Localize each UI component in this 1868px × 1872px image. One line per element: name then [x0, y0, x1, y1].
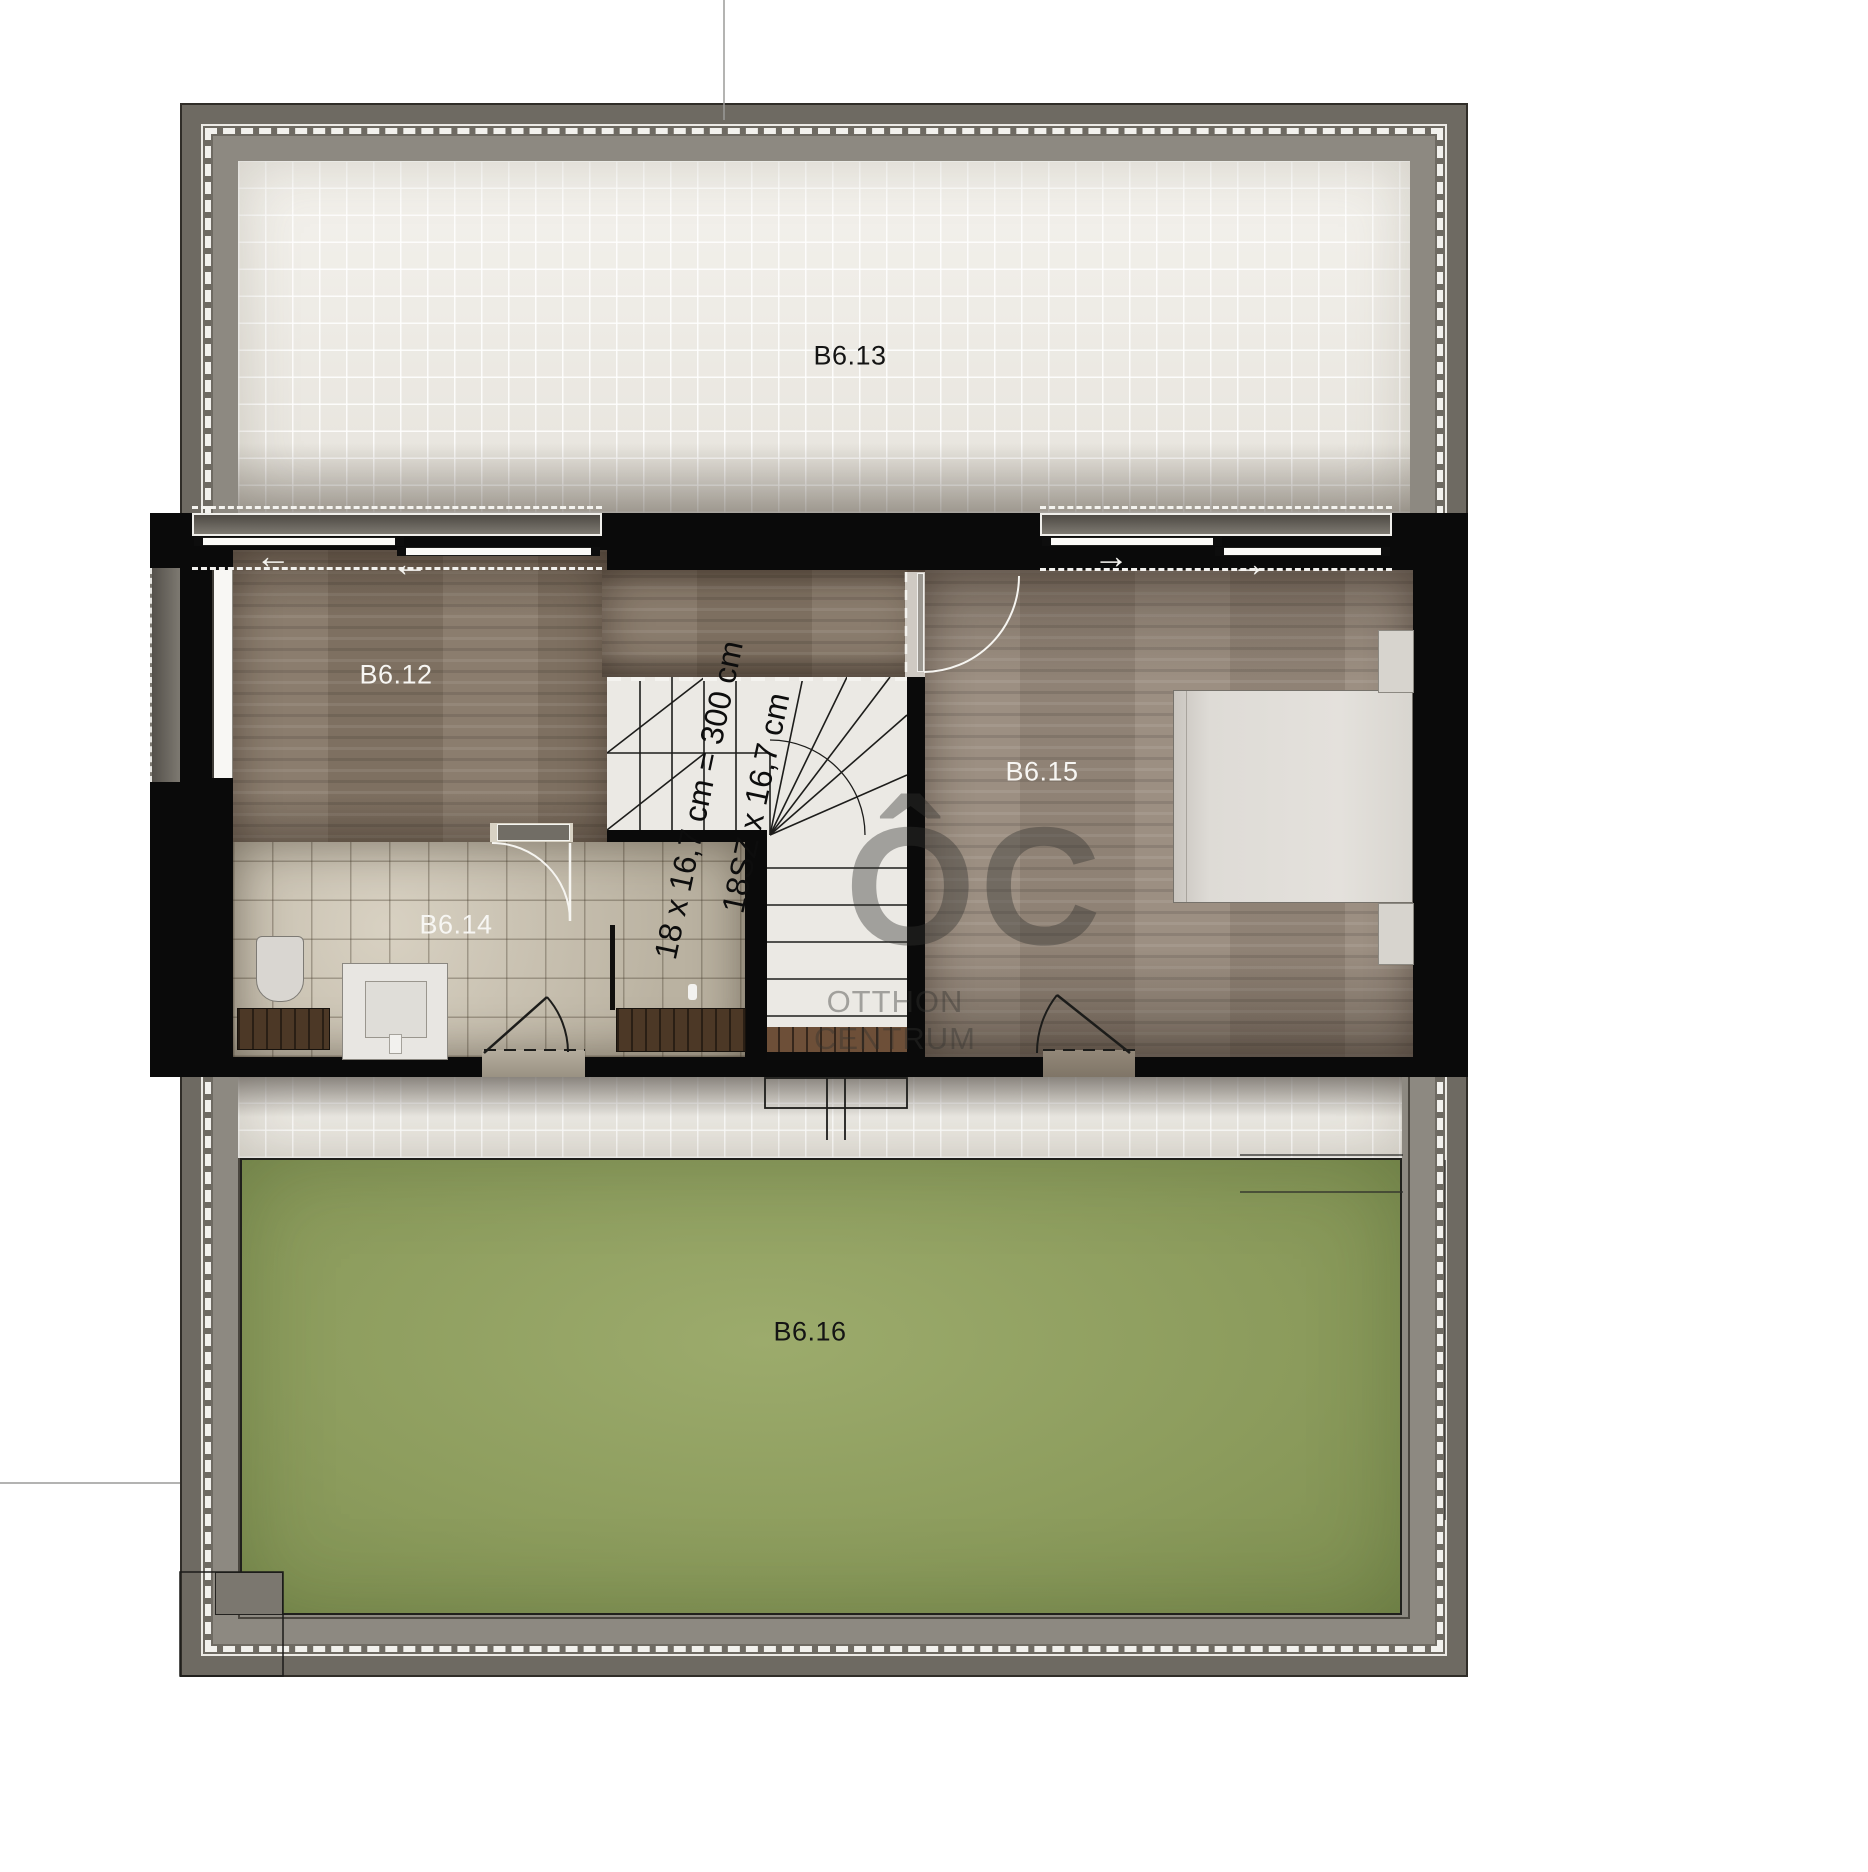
- room-label-b613: B6.13: [813, 341, 886, 372]
- room-label-b614: B6.14: [419, 910, 492, 941]
- room-label-b612: B6.12: [359, 660, 432, 691]
- watermark-line1: OTTHON: [790, 984, 1000, 1020]
- room-label-b616: B6.16: [773, 1317, 846, 1348]
- watermark-logo-icon: ÔC: [845, 800, 1085, 972]
- floor-plan-page: { "plan": { "rooms": [ {"id": "B6.13"}, …: [0, 0, 1868, 1872]
- room-label-b615: B6.15: [1005, 757, 1078, 788]
- watermark-line2: CENTRUM: [790, 1021, 1000, 1057]
